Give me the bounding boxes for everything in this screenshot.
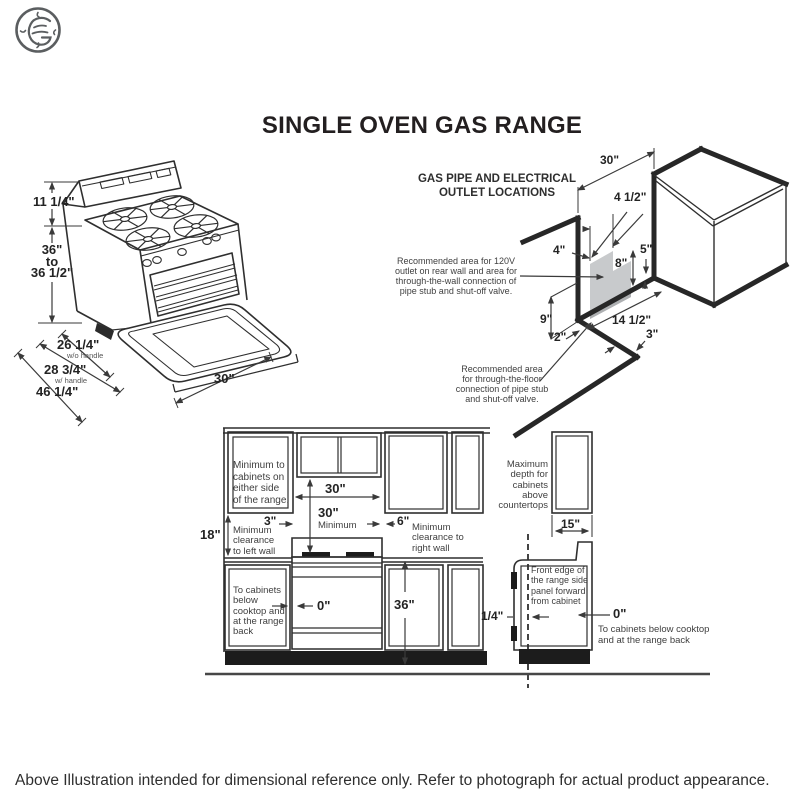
dim-height-range: 36" to 36 1/2" bbox=[25, 244, 79, 279]
fe-dim-30-min: 30" bbox=[318, 505, 339, 520]
se-dim-quarter: 1/4" bbox=[481, 609, 503, 623]
gas-diagram-heading: GAS PIPE AND ELECTRICAL OUTLET LOCATIONS bbox=[407, 172, 587, 200]
note-side-cabinets: Minimum to cabinets on either side of th… bbox=[233, 460, 291, 507]
fe-min-label: Minimum bbox=[318, 520, 357, 531]
gas-dim-5: 5" bbox=[640, 242, 652, 256]
gas-dim-4: 4" bbox=[553, 243, 565, 257]
se-dim-15: 15" bbox=[561, 517, 580, 531]
note-front-edge: Front edge of the range side panel forwa… bbox=[531, 565, 589, 606]
gas-dim-3: 3" bbox=[646, 327, 658, 341]
dim-range-width: 30" bbox=[214, 371, 235, 386]
ge-logo-icon bbox=[17, 9, 60, 52]
note-floor-connection: Recommended area for through-the-floor c… bbox=[451, 364, 553, 404]
fe-dim-0: 0" bbox=[317, 598, 330, 613]
note-right-wall: Minimum clearance to right wall bbox=[412, 523, 468, 554]
fe-dim-36: 36" bbox=[394, 597, 415, 612]
note-below-cabinets-left: To cabinets below cooktop and at the ran… bbox=[233, 586, 285, 637]
dim-depth-overall: 46 1/4" bbox=[36, 384, 78, 399]
spec-sheet-page: SINGLE OVEN GAS RANGE 11 1/4" 36" to 36 … bbox=[0, 0, 800, 800]
gas-dim-30: 30" bbox=[600, 153, 619, 167]
note-wall-outlet: Recommended area for 120V outlet on rear… bbox=[390, 256, 522, 296]
disclaimer: Above Illustration intended for dimensio… bbox=[15, 772, 793, 790]
toe-kick bbox=[225, 651, 487, 665]
gas-dim-9: 9" bbox=[540, 312, 552, 326]
dim-depth-w-handle: 28 3/4" bbox=[44, 362, 86, 377]
fe-dim-18: 18" bbox=[200, 527, 221, 542]
dim-depth-wo-handle: 26 1/4" bbox=[57, 337, 99, 352]
gas-dim-4-5: 4 1/2" bbox=[614, 190, 646, 204]
range-front bbox=[292, 557, 382, 649]
gas-dim-2: 2" bbox=[554, 330, 566, 344]
dim-depth-wo-handle-note: w/o handle bbox=[67, 351, 103, 360]
note-below-cabinets-right: To cabinets below cooktop and at the ran… bbox=[598, 625, 728, 646]
page-title: SINGLE OVEN GAS RANGE bbox=[212, 112, 632, 140]
note-max-depth: Maximum depth for cabinets above counter… bbox=[486, 460, 548, 511]
gas-dim-14-5: 14 1/2" bbox=[612, 313, 651, 327]
fe-dim-30-top: 30" bbox=[325, 481, 346, 496]
se-dim-0: 0" bbox=[613, 606, 626, 621]
dim-backguard-height: 11 1/4" bbox=[33, 194, 75, 209]
gas-dim-8: 8" bbox=[615, 256, 627, 270]
fe-dim-6: 6" bbox=[397, 514, 409, 528]
note-left-wall: Minimum clearance to left wall bbox=[233, 526, 281, 557]
